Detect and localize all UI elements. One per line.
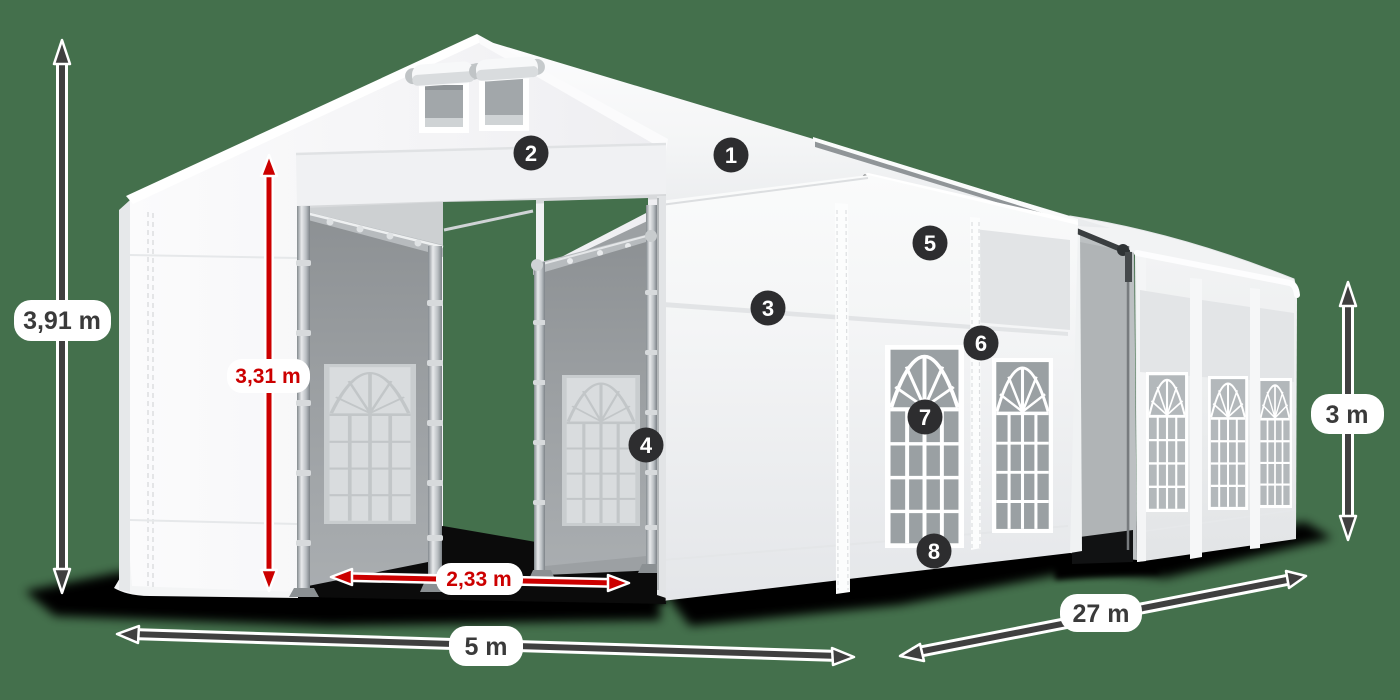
svg-text:3,31 m: 3,31 m — [235, 365, 300, 388]
svg-text:27 m: 27 m — [1073, 600, 1130, 628]
svg-text:3 m: 3 m — [1325, 401, 1368, 429]
svg-text:7: 7 — [919, 405, 931, 430]
svg-text:2: 2 — [525, 141, 537, 166]
svg-text:3,91 m: 3,91 m — [23, 307, 101, 335]
svg-text:4: 4 — [640, 433, 653, 458]
svg-text:5: 5 — [924, 231, 936, 256]
svg-text:5 m: 5 m — [464, 633, 507, 661]
svg-text:2,33 m: 2,33 m — [446, 568, 511, 591]
svg-text:3: 3 — [762, 296, 774, 321]
svg-text:1: 1 — [725, 143, 737, 168]
svg-text:6: 6 — [975, 331, 987, 356]
svg-text:8: 8 — [928, 539, 940, 564]
